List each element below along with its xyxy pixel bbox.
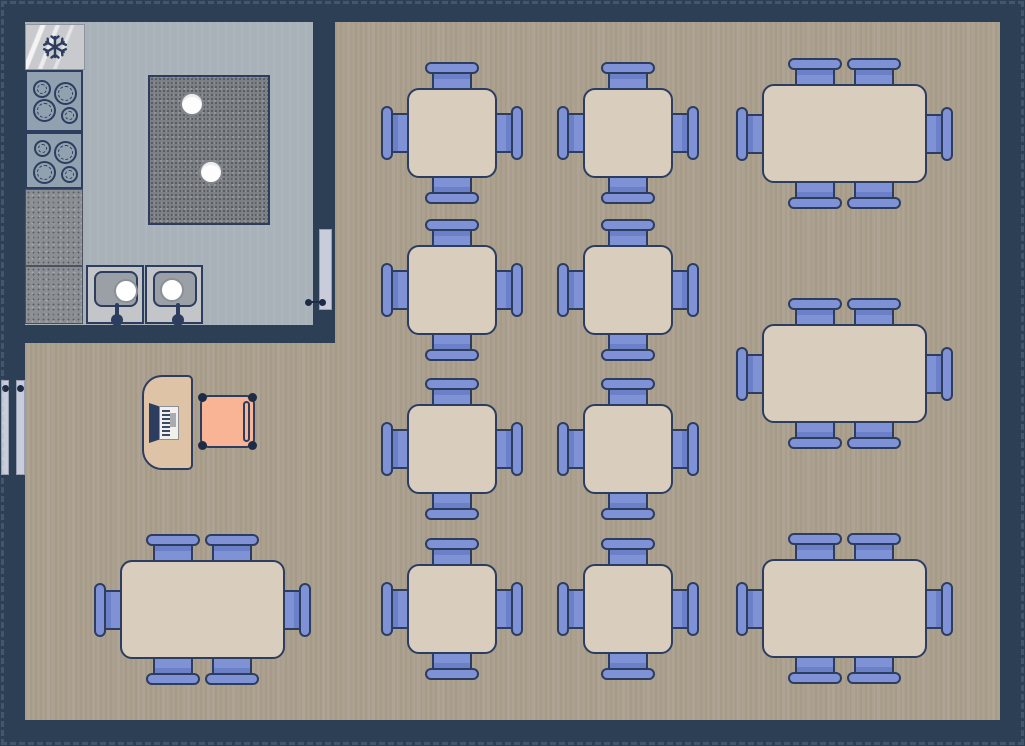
chair-back [788, 58, 842, 70]
chair-back [788, 533, 842, 545]
square-table-4-seats[interactable] [583, 404, 673, 494]
chair-back [788, 672, 842, 684]
square-table-4-seats[interactable] [407, 88, 497, 178]
square-table-4-seats[interactable] [407, 404, 497, 494]
chair-back [425, 508, 479, 520]
chair-back [601, 219, 655, 231]
stove-cooktop[interactable] [25, 132, 83, 189]
chair-back [381, 582, 393, 636]
host-guest-chair[interactable] [200, 395, 255, 448]
chair-back [381, 106, 393, 160]
chair-back [146, 673, 200, 685]
chair-back [736, 107, 748, 161]
burner-icon [33, 161, 56, 184]
chair-back [941, 347, 953, 401]
square-table-4-seats[interactable] [407, 564, 497, 654]
burner-icon [33, 99, 56, 122]
square-table-4-seats[interactable] [583, 564, 673, 654]
burner-icon [33, 80, 51, 98]
chair-back [601, 668, 655, 680]
island-sink-hole [180, 92, 204, 116]
chair-back [788, 437, 842, 449]
chair-back [601, 508, 655, 520]
chair-back [381, 422, 393, 476]
door-handle-icon [305, 299, 312, 306]
chair-back [511, 106, 523, 160]
square-table-4-seats[interactable] [583, 245, 673, 335]
chair-back [941, 582, 953, 636]
chair-back [425, 62, 479, 74]
chair-post-icon [248, 441, 257, 450]
kitchen-counter[interactable] [25, 189, 83, 266]
door-handle-icon [319, 299, 326, 306]
chair-back [511, 263, 523, 317]
register-body [159, 406, 179, 440]
kitchen-island[interactable] [148, 75, 270, 225]
chair-back [601, 538, 655, 550]
entry-door[interactable] [1, 380, 9, 475]
chair-back [511, 582, 523, 636]
chair-back [205, 673, 259, 685]
chair-back [299, 583, 311, 637]
chair-back [511, 422, 523, 476]
chair-back [601, 192, 655, 204]
chair-back [425, 538, 479, 550]
chair-back [425, 192, 479, 204]
kitchen-sink[interactable] [86, 265, 144, 324]
chair-back [557, 106, 569, 160]
chair-back [687, 263, 699, 317]
chair-back [788, 197, 842, 209]
chair-back [425, 668, 479, 680]
chair-back [205, 534, 259, 546]
chair-back [687, 582, 699, 636]
chair-post-icon [198, 441, 207, 450]
chair-back [687, 422, 699, 476]
rect-table-6-seats[interactable] [120, 560, 285, 659]
faucet-knob-icon [111, 314, 123, 326]
chair-back [243, 401, 250, 442]
faucet-knob-icon [172, 314, 184, 326]
entry-door[interactable] [16, 380, 25, 475]
chair-back [847, 58, 901, 70]
refrigerator[interactable] [25, 24, 85, 70]
chair-back [941, 107, 953, 161]
burner-icon [54, 82, 77, 105]
sink-hole-icon [114, 279, 138, 303]
door-handle-icon [17, 385, 24, 392]
chair-back [601, 62, 655, 74]
chair-back [425, 349, 479, 361]
chair-back [557, 582, 569, 636]
chair-back [381, 263, 393, 317]
burner-icon [61, 107, 78, 124]
chair-back [601, 349, 655, 361]
chair-back [94, 583, 106, 637]
square-table-4-seats[interactable] [407, 245, 497, 335]
chair-back [146, 534, 200, 546]
cash-register[interactable] [149, 403, 179, 443]
chair-back [847, 197, 901, 209]
kitchen-counter[interactable] [25, 266, 83, 324]
burner-icon [54, 141, 77, 164]
chair-back [736, 347, 748, 401]
floor-plan-canvas [0, 0, 1025, 746]
chair-back [847, 437, 901, 449]
island-sink-hole [199, 160, 223, 184]
chair-back [847, 533, 901, 545]
chair-post-icon [248, 393, 257, 402]
burner-icon [34, 140, 51, 157]
register-keys-icon [162, 410, 170, 436]
snowflake-icon [42, 34, 68, 60]
door-handle-icon [2, 385, 9, 392]
chair-back [736, 582, 748, 636]
rect-table-6-seats[interactable] [762, 84, 927, 183]
rect-table-6-seats[interactable] [762, 559, 927, 658]
chair-back [687, 106, 699, 160]
chair-back [847, 672, 901, 684]
rect-table-6-seats[interactable] [762, 324, 927, 423]
kitchen-door[interactable] [319, 229, 332, 310]
chair-back [425, 219, 479, 231]
chair-back [557, 263, 569, 317]
sink-hole-icon [160, 278, 184, 302]
burner-icon [61, 166, 78, 183]
register-panel-icon [170, 413, 176, 427]
chair-back [847, 298, 901, 310]
stove-cooktop[interactable] [25, 70, 83, 132]
chair-post-icon [198, 393, 207, 402]
chair-back [557, 422, 569, 476]
kitchen-sink[interactable] [145, 265, 203, 324]
chair-back [425, 378, 479, 390]
chair-back [788, 298, 842, 310]
square-table-4-seats[interactable] [583, 88, 673, 178]
chair-back [601, 378, 655, 390]
